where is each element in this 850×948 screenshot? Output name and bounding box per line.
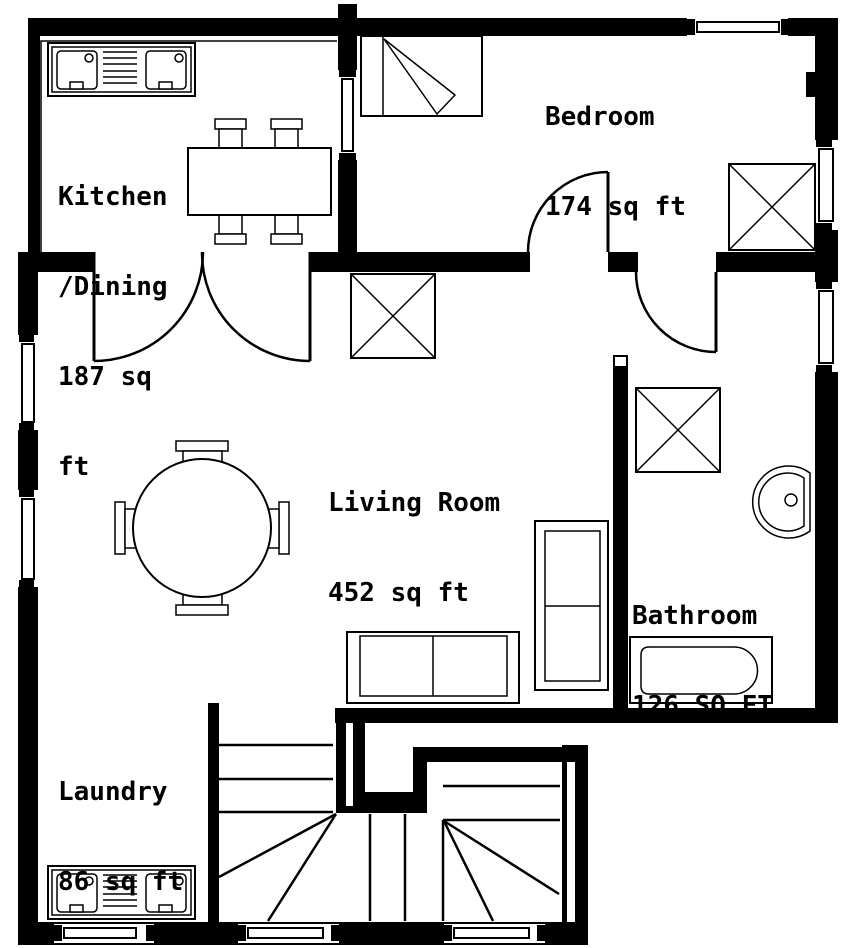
room-name-line: Kitchen — [58, 182, 168, 212]
kitchen-dining-label: Kitchen /Dining 187 sq ft — [58, 122, 168, 542]
laundry-label: Laundry 86 sq ft — [58, 717, 183, 948]
living-room-closet — [351, 274, 435, 358]
window-bottom-stairs-left — [238, 924, 339, 943]
bathroom-door — [636, 272, 716, 352]
bathroom-label: Bathroom 126 SQ FT — [632, 541, 773, 781]
room-name-line: Bathroom — [632, 601, 773, 631]
window-bottom-stairs-right — [444, 924, 545, 943]
couch — [535, 521, 608, 690]
room-area-line: 174 sq ft — [545, 192, 686, 222]
wash-basin — [753, 466, 810, 538]
window-kitchen-divider — [339, 70, 356, 160]
room-name-line: Bedroom — [545, 102, 686, 132]
window-left-living-2 — [19, 490, 34, 587]
kitchen-sink-unit — [48, 43, 195, 96]
room-name-line: Living Room — [328, 488, 500, 518]
double-bed — [361, 36, 482, 116]
room-area-line: 452 sq ft — [328, 578, 500, 608]
living-room-label: Living Room 452 sq ft — [328, 428, 500, 668]
room-area-line: 187 sq — [58, 362, 168, 392]
bedroom-closet — [729, 164, 815, 250]
room-area-line: 126 SQ FT — [632, 691, 773, 721]
room-area-line: ft — [58, 452, 168, 482]
window-left-living-1 — [19, 335, 34, 430]
bathroom-shower — [636, 388, 720, 472]
dining-table — [188, 119, 331, 244]
room-area-line: 86 sq ft — [58, 867, 183, 897]
room-name-line: Laundry — [58, 777, 183, 807]
window-right-bathroom — [816, 282, 833, 372]
stairwell-walls — [336, 722, 588, 922]
staircase — [219, 745, 560, 921]
window-top-bedroom — [687, 19, 789, 35]
room-name-line: /Dining — [58, 272, 168, 302]
bedroom-label: Bedroom 174 sq ft — [545, 42, 686, 282]
floor-plan: Kitchen /Dining 187 sq ft Bedroom 174 sq… — [0, 0, 850, 948]
window-right-bedroom — [816, 140, 833, 230]
